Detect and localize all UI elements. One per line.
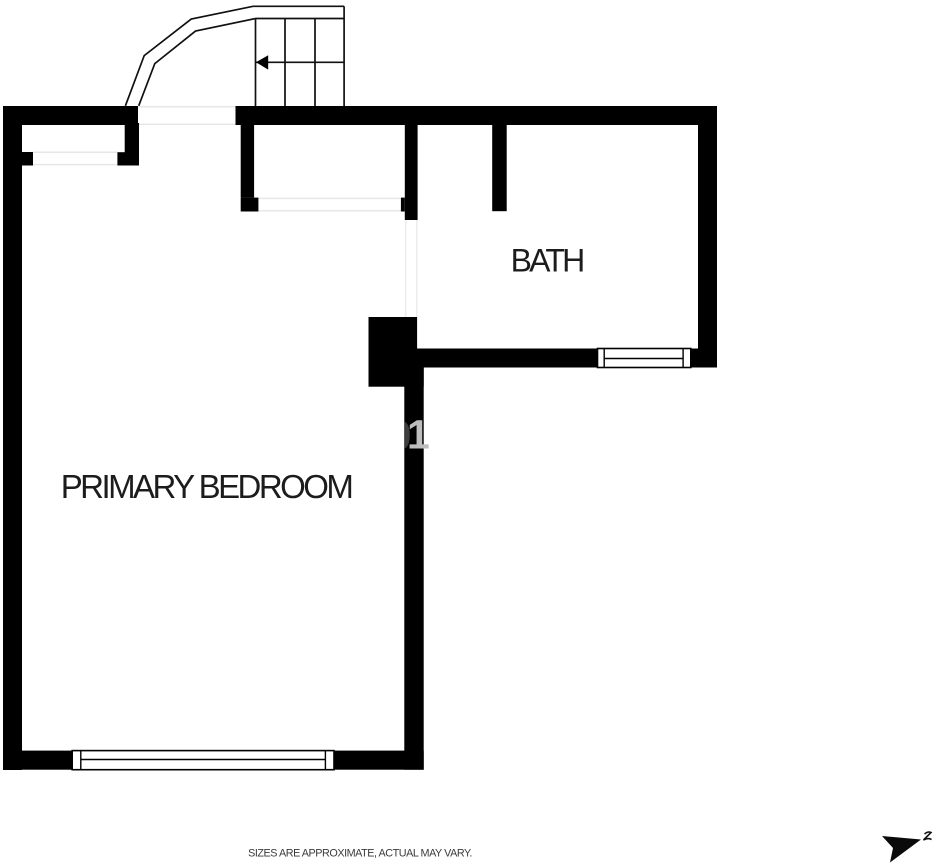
svg-text:1: 1 [407,412,430,458]
svg-text:BATH: BATH [511,243,583,279]
svg-text:SIZES ARE APPROXIMATE, ACTUAL: SIZES ARE APPROXIMATE, ACTUAL MAY VARY. [248,848,472,860]
svg-text:PRIMARY BEDROOM: PRIMARY BEDROOM [61,468,352,505]
